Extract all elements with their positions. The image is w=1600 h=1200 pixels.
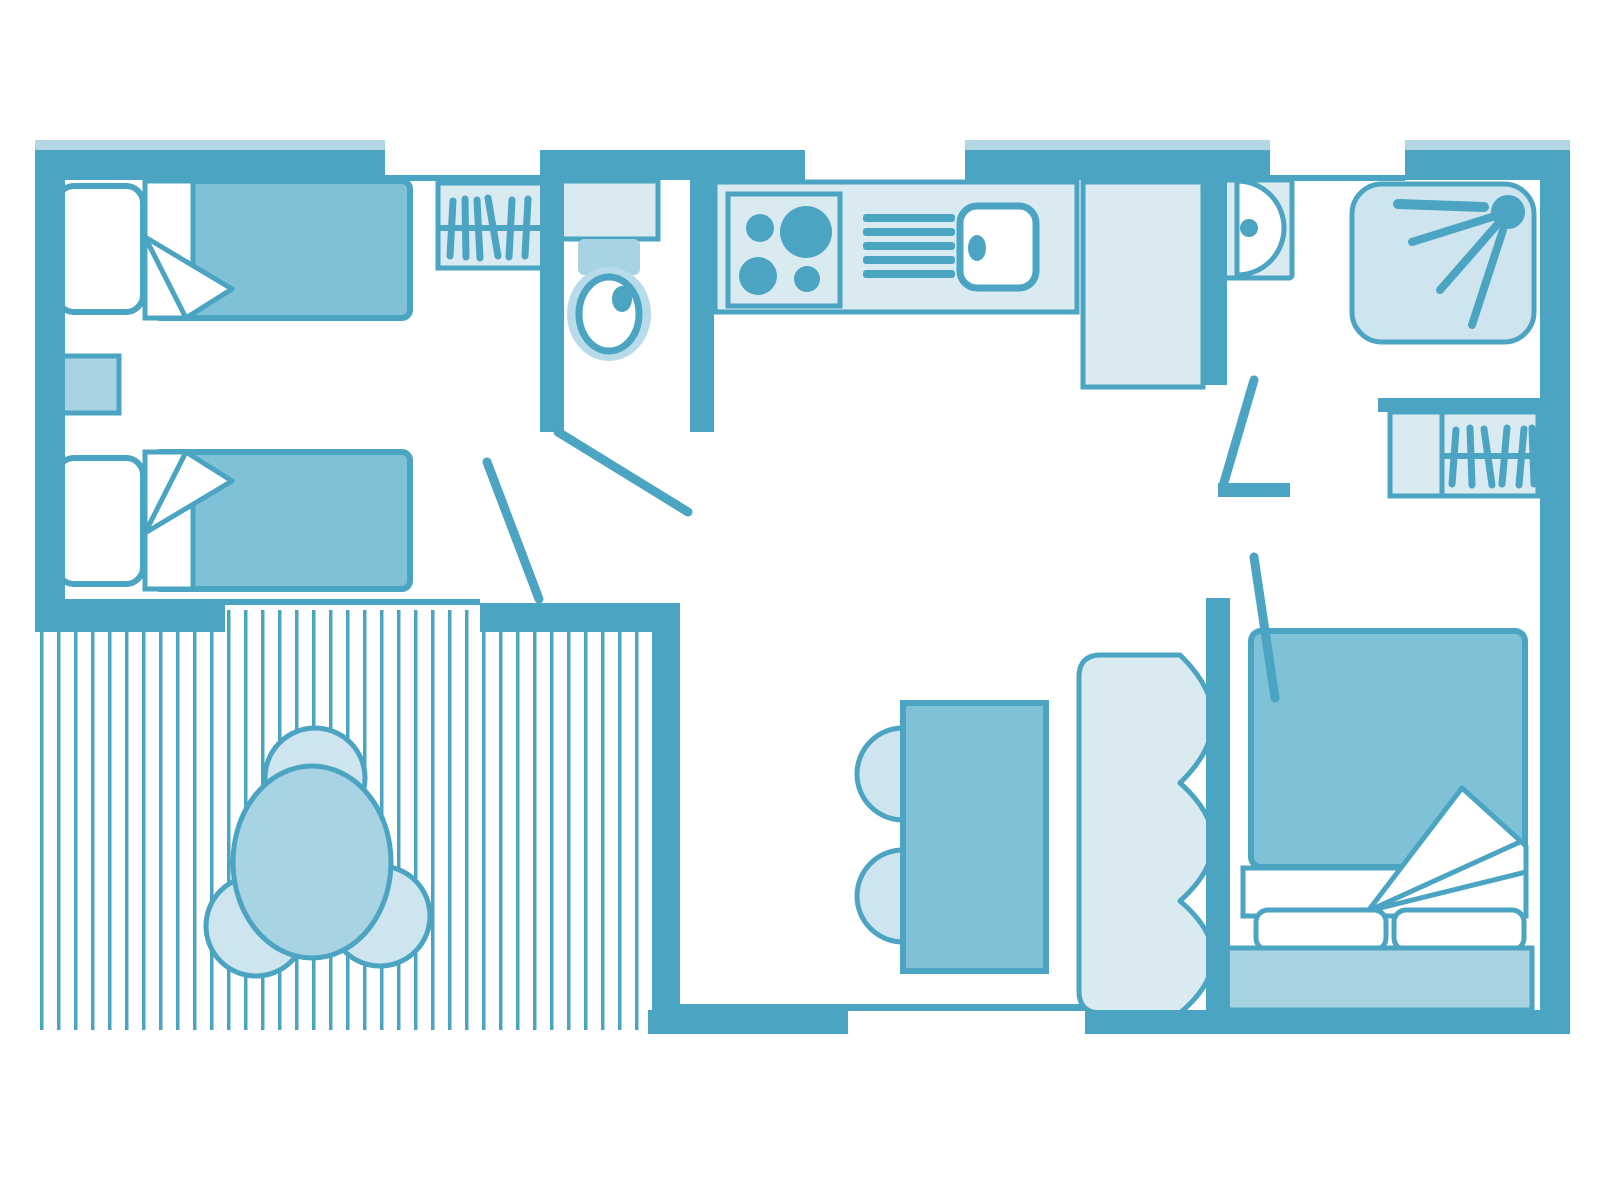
burner xyxy=(780,206,832,258)
dining-chair xyxy=(857,850,903,942)
top-wall xyxy=(35,150,385,180)
master-bedroom xyxy=(1222,631,1532,1010)
bathroom-south-wall xyxy=(1218,483,1290,497)
floor-plan-drawing xyxy=(0,0,1600,1200)
burner xyxy=(746,214,774,242)
window-sill xyxy=(385,175,550,181)
top-wall xyxy=(550,150,805,180)
shower-head xyxy=(1491,195,1525,229)
nightstand xyxy=(62,356,119,413)
bed-pillow xyxy=(1256,910,1386,950)
sink-drain xyxy=(968,235,986,261)
toilet-east-wall xyxy=(690,150,714,432)
terrace xyxy=(38,610,650,1030)
bathroom xyxy=(1222,180,1538,496)
toilet-cistern xyxy=(558,181,658,239)
twin-bedroom xyxy=(57,181,543,589)
bathroom-door-swing xyxy=(1223,380,1254,486)
bed-pillow xyxy=(57,186,143,312)
kitchen xyxy=(715,182,1203,387)
master-west-wall xyxy=(1206,598,1230,1032)
master-closet xyxy=(1390,412,1538,496)
patio-door-sill xyxy=(655,1004,1085,1011)
toilet-bowl xyxy=(579,277,639,351)
toilet-door-swing xyxy=(558,432,688,512)
bedroom-closet xyxy=(438,183,543,268)
single-bed-bottom xyxy=(57,452,410,589)
toilet-seat-dot xyxy=(612,286,632,312)
shower-icon xyxy=(1352,184,1534,342)
entrance-door-swing xyxy=(487,462,539,599)
washbasin-faucet-dot xyxy=(1240,219,1258,237)
bottom-wall xyxy=(1085,1010,1570,1034)
closet-north-wall xyxy=(1378,398,1540,412)
living-dining xyxy=(857,655,1213,1013)
closet-shelf-box xyxy=(1390,412,1442,496)
left-wall xyxy=(35,150,65,632)
dining-chair xyxy=(857,728,903,820)
terrace-round-table xyxy=(233,766,391,958)
bed-headboard xyxy=(1222,948,1532,1010)
floor-plan-page xyxy=(0,0,1600,1200)
hall-east-wall xyxy=(1203,150,1227,385)
bedroom-south-wall xyxy=(480,603,680,632)
burner xyxy=(794,266,820,292)
bed-pillow xyxy=(57,458,143,584)
window-sill xyxy=(1270,175,1405,181)
fridge-cabinet xyxy=(1083,182,1203,387)
terrace-east-wall xyxy=(652,603,680,1032)
bedroom-south-wall xyxy=(35,603,225,632)
dining-table xyxy=(903,703,1046,971)
bed-pillow xyxy=(1394,910,1524,950)
single-bed-top xyxy=(57,181,410,318)
bench-seat xyxy=(1079,655,1213,1013)
right-wall xyxy=(1540,150,1570,1032)
toilet-room xyxy=(558,181,658,361)
burner xyxy=(739,257,777,295)
toilet-west-wall xyxy=(540,150,564,432)
